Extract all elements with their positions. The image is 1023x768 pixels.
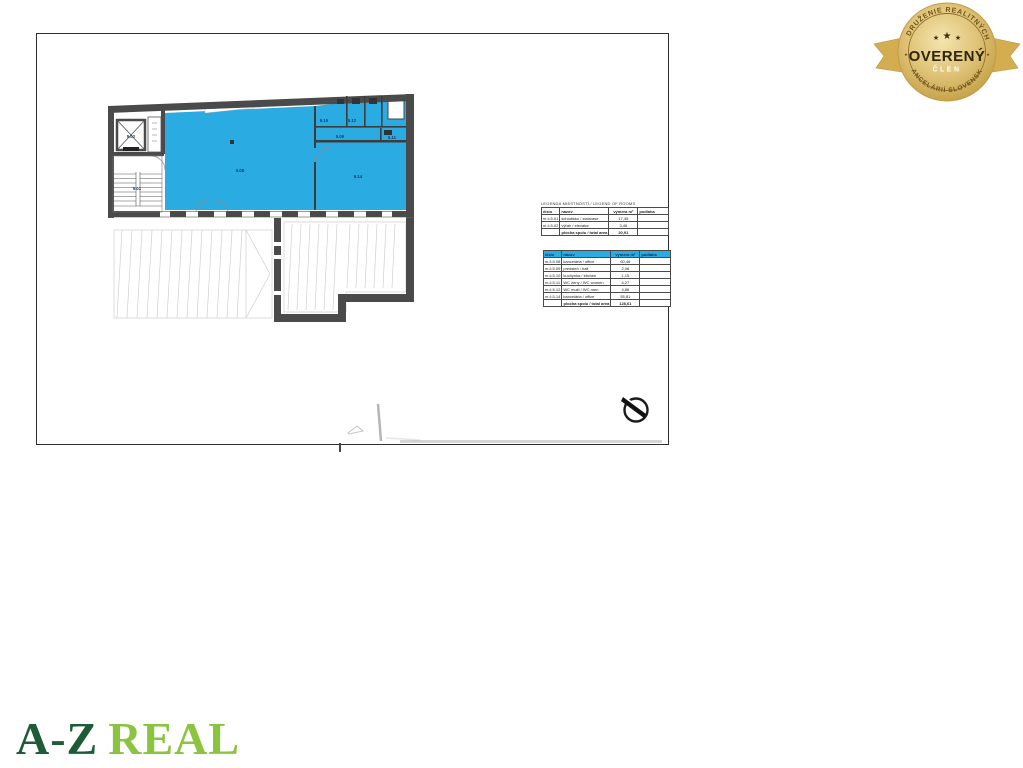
border-smudge (400, 440, 662, 443)
col-number: číslo (542, 208, 560, 215)
cell-floor (640, 300, 671, 307)
cell-name: predsieň / hall (562, 265, 611, 272)
cell-area: 1,15 (611, 272, 640, 279)
cell-no: m.č.5.11 (544, 279, 562, 286)
cell-floor (640, 258, 671, 265)
table-header-row: číslo názov výmera m² podlaha (544, 251, 671, 258)
col-name: názov (560, 208, 609, 215)
room-label-514: 5.14 (354, 174, 363, 179)
cell-name: schodisko / staircase (560, 215, 609, 222)
verified-member-badge: ZDRUŽENIE REALITNÝCH KANCELÁRIÍ SLOVENSK… (872, 0, 1022, 106)
cell-area: 60,46 (611, 258, 640, 265)
roof-left (114, 230, 272, 318)
badge-star-icon: ★ (943, 31, 952, 42)
total-value: 128,61 (611, 300, 640, 307)
cell-name: WC muži / WC men (562, 286, 611, 293)
staircase (113, 156, 162, 212)
col-name: názov (562, 251, 611, 258)
shaft-room (148, 117, 161, 152)
table-row: m.č.5.12 WC muži / WC men 4,86 (544, 286, 671, 293)
badge-subtitle: ČLEN (932, 65, 961, 74)
cell-no: m.č.5.08 (544, 258, 562, 265)
logo-secondary-text: REAL (108, 713, 240, 764)
cell-name: kancelária / office (562, 293, 611, 300)
cell-name: kancelária / office (562, 258, 611, 265)
total-label: plocha spolu / total area (562, 300, 611, 307)
cell-no: m.č.5.14 (544, 293, 562, 300)
cell-name: výťah / elevator (560, 222, 609, 229)
cell-floor (638, 215, 669, 222)
highlighted-unit (165, 95, 406, 210)
badge-star-icon: ★ (933, 34, 939, 42)
room-label-508: 5.08 (236, 168, 245, 173)
cell-no: m.č.5.12 (544, 286, 562, 293)
cell-floor (640, 265, 671, 272)
table-row: m.č.5.08 kancelária / office 60,46 (544, 258, 671, 265)
table-row: m.č.5.11 WC ženy / WC women 4,27 (544, 279, 671, 286)
cell-floor (638, 229, 669, 236)
room-label-510: 5.10 (320, 118, 329, 123)
cell-no: m.č.5.02 (542, 222, 560, 229)
cell-floor (640, 286, 671, 293)
north-arrow-icon (616, 390, 658, 430)
table-footer-row: plocha spolu / total area 128,61 (544, 300, 671, 307)
scan-artifacts (330, 395, 450, 455)
page: { "floor_plan": { "rooms": { "r501": "5.… (0, 0, 1023, 768)
table-row: m.č.5.14 kancelária / office 55,81 (544, 293, 671, 300)
room-label-501: 5.01 (133, 186, 142, 191)
total-label: plocha spolu / total area (560, 229, 609, 236)
col-floor: podlaha (640, 251, 671, 258)
logo-primary-text: A-Z (16, 713, 98, 764)
room-label-502: 5.02 (127, 134, 136, 139)
unit-rooms-table: číslo názov výmera m² podlaha m.č.5.08 k… (543, 250, 671, 307)
badge-title: OVERENÝ (909, 47, 986, 65)
unit-rooms-legend: číslo názov výmera m² podlaha m.č.5.08 k… (543, 250, 671, 307)
floor-plan: 5.02 5.01 5.08 5.10 5.12 5.09 5.11 5.14 (100, 88, 430, 328)
table-row: m.č.5.10 kuchynka / kitchen 1,15 (544, 272, 671, 279)
badge-star-icon: ★ (955, 34, 961, 42)
cell-no (544, 300, 562, 307)
table-header-row: číslo názov výmera m² podlaha (542, 208, 669, 215)
total-value: 20,91 (609, 229, 638, 236)
rooms-legend: LEGENDA MIESTNOSTÍ / LEGEND OF ROOMS čís… (541, 201, 669, 236)
cell-name: WC ženy / WC women (562, 279, 611, 286)
rooms-legend-table: číslo názov výmera m² podlaha m.č.5.01 s… (541, 207, 669, 236)
cell-no: m.č.5.09 (544, 265, 562, 272)
room-fill-508 (165, 106, 315, 210)
col-number: číslo (544, 251, 562, 258)
cell-area: 3,46 (609, 222, 638, 229)
room-label-509: 5.09 (336, 134, 345, 139)
cell-name: kuchynka / kitchen (562, 272, 611, 279)
col-area: výmera m² (609, 208, 638, 215)
col-area: výmera m² (611, 251, 640, 258)
scale-tick (339, 443, 341, 452)
cell-floor (640, 279, 671, 286)
table-row: m.č.5.09 predsieň / hall 2,06 (544, 265, 671, 272)
cell-area: 4,27 (611, 279, 640, 286)
table-row: m.č.5.01 schodisko / staircase 17,45 (542, 215, 669, 222)
cell-floor (638, 222, 669, 229)
cell-area: 2,06 (611, 265, 640, 272)
cell-no (542, 229, 560, 236)
table-footer-row: plocha spolu / total area 20,91 (542, 229, 669, 236)
agency-logo: A-ZREAL (16, 712, 240, 765)
legend-title: LEGENDA MIESTNOSTÍ / LEGEND OF ROOMS (541, 201, 669, 206)
cell-floor (640, 293, 671, 300)
col-floor: podlaha (638, 208, 669, 215)
cell-area: 17,45 (609, 215, 638, 222)
cell-floor (640, 272, 671, 279)
room-label-511: 5.11 (388, 135, 397, 140)
room-label-512: 5.12 (348, 118, 357, 123)
cell-area: 55,81 (611, 293, 640, 300)
column (230, 140, 234, 144)
table-row: m.č.5.02 výťah / elevator 3,46 (542, 222, 669, 229)
cell-no: m.č.5.10 (544, 272, 562, 279)
cell-no: m.č.5.01 (542, 215, 560, 222)
cell-area: 4,86 (611, 286, 640, 293)
